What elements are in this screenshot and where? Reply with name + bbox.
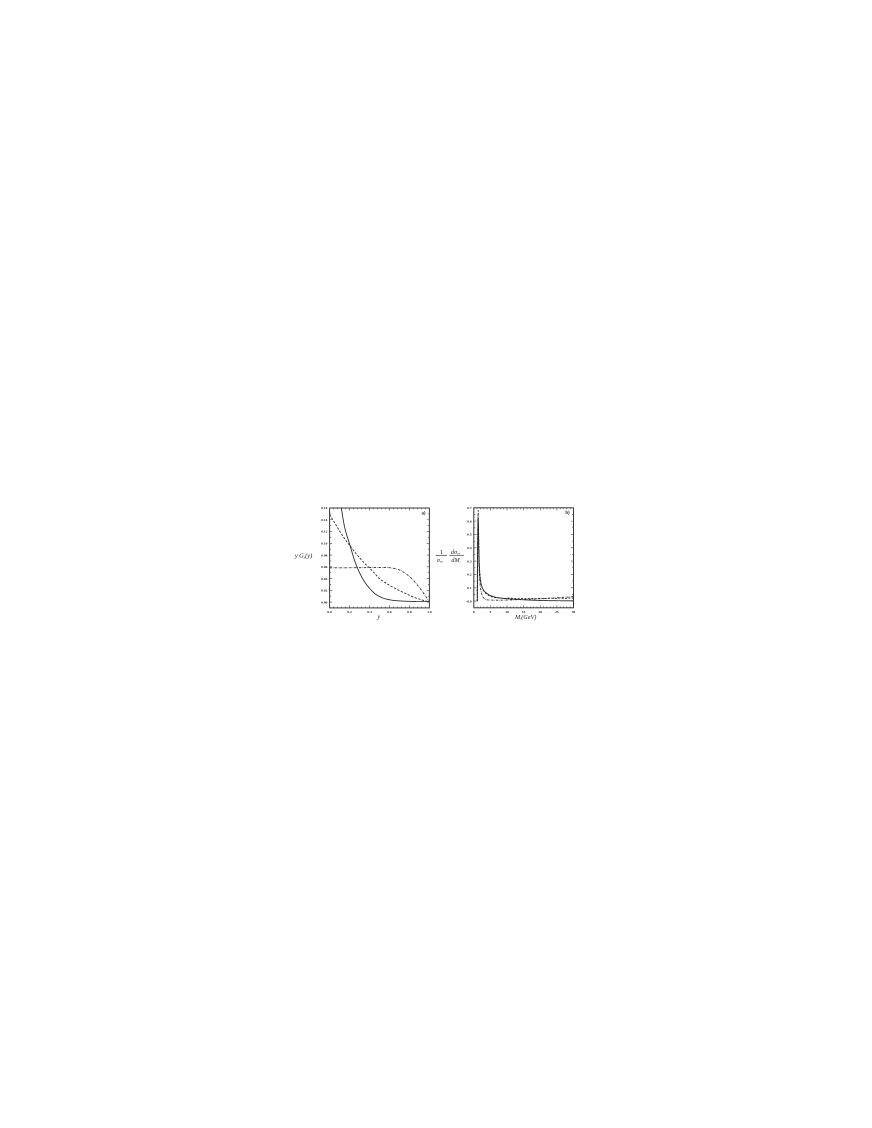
svg-text:y: y bbox=[376, 614, 380, 621]
svg-text:dσDIF: dσDIF bbox=[451, 549, 461, 556]
svg-text:Mx(GeV): Mx(GeV) bbox=[514, 614, 536, 621]
svg-text:25: 25 bbox=[555, 610, 559, 614]
svg-text:1.0: 1.0 bbox=[427, 610, 432, 614]
svg-text:0: 0 bbox=[473, 610, 475, 614]
svg-text:30: 30 bbox=[572, 610, 576, 614]
svg-text:0.10: 0.10 bbox=[321, 541, 327, 545]
svg-text:0.6: 0.6 bbox=[467, 519, 472, 523]
svg-text:0.7: 0.7 bbox=[467, 506, 472, 510]
svg-text:a): a) bbox=[422, 512, 426, 517]
svg-text:b): b) bbox=[565, 511, 570, 516]
svg-text:0.3: 0.3 bbox=[467, 559, 472, 563]
svg-text:-0.0: -0.0 bbox=[466, 599, 472, 603]
svg-text:0.4: 0.4 bbox=[467, 546, 472, 550]
svg-text:10: 10 bbox=[505, 610, 509, 614]
svg-text:y Gp(y): y Gp(y) bbox=[294, 553, 312, 560]
svg-text:0.16: 0.16 bbox=[321, 506, 327, 510]
svg-text:0.02: 0.02 bbox=[321, 589, 327, 593]
svg-text:0.12: 0.12 bbox=[321, 530, 327, 534]
svg-text:0.04: 0.04 bbox=[321, 577, 327, 581]
svg-text:20: 20 bbox=[539, 610, 543, 614]
svg-text:1: 1 bbox=[440, 549, 443, 556]
svg-text:0.2: 0.2 bbox=[347, 610, 352, 614]
svg-text:0.6: 0.6 bbox=[387, 610, 392, 614]
svg-text:0.4: 0.4 bbox=[367, 610, 372, 614]
svg-text:0.5: 0.5 bbox=[467, 533, 472, 537]
svg-text:0.8: 0.8 bbox=[407, 610, 412, 614]
svg-text:0.00: 0.00 bbox=[321, 600, 327, 604]
svg-text:0.2: 0.2 bbox=[467, 573, 472, 577]
svg-text:5: 5 bbox=[490, 610, 492, 614]
svg-text:0.0: 0.0 bbox=[327, 610, 332, 614]
svg-text:σDIS: σDIS bbox=[437, 557, 444, 564]
svg-text:0.14: 0.14 bbox=[321, 518, 327, 522]
svg-text:0.08: 0.08 bbox=[321, 553, 327, 557]
svg-text:0.06: 0.06 bbox=[321, 565, 327, 569]
svg-text:dMx: dMx bbox=[451, 557, 460, 564]
svg-text:0.1: 0.1 bbox=[467, 586, 472, 590]
